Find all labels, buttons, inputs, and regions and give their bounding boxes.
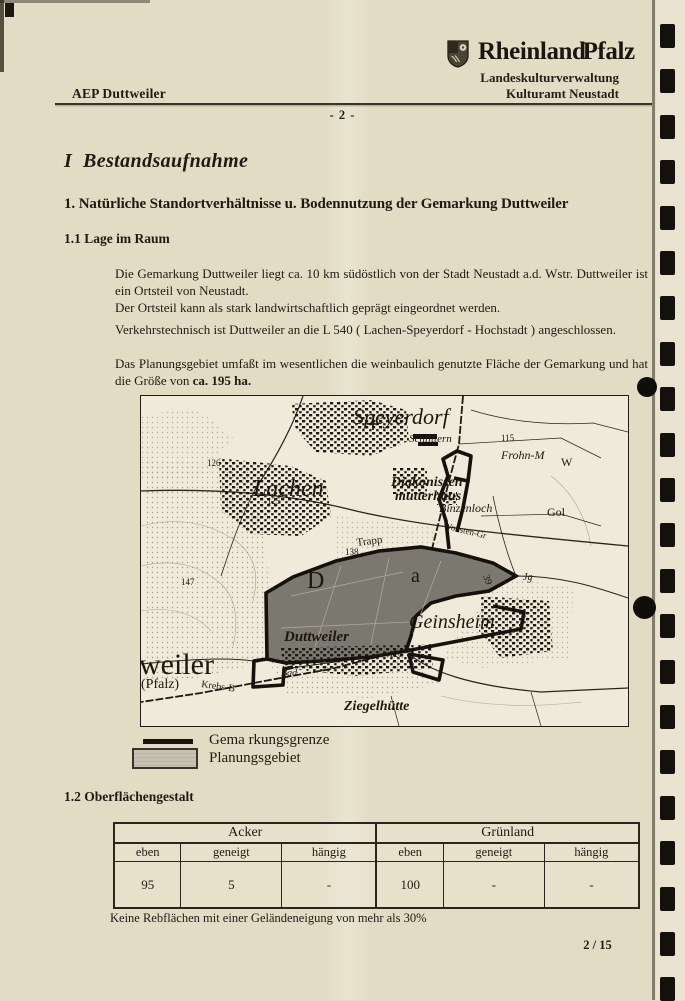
- org-line-1: Landeskulturverwaltung: [480, 70, 619, 86]
- binding-hole: [660, 206, 675, 230]
- coat-of-arms-icon: [447, 40, 469, 73]
- binding-hole: [660, 387, 675, 411]
- punch-hole-dot-lower: [633, 596, 656, 619]
- binding-hole: [660, 569, 675, 593]
- binding-hole: [660, 614, 675, 638]
- legend-planning-label: Planungsgebiet: [209, 750, 301, 767]
- section-heading-1: I Bestandsaufnahme: [64, 150, 248, 173]
- table-value-acker-haengig: -: [282, 862, 377, 909]
- map-label-115: 115: [501, 433, 515, 443]
- page-number: 2 / 15: [560, 938, 635, 953]
- brand-part-2: Pfalz: [583, 38, 635, 65]
- top-left-scan-edge: [0, 0, 4, 72]
- map-label-diakonissen: Diakonissen: [390, 475, 463, 490]
- binding-hole: [660, 660, 675, 684]
- section-heading-3: 1.1 Lage im Raum: [64, 231, 170, 247]
- map-label-bad: Bad: [281, 668, 298, 679]
- binding-hole: [660, 932, 675, 956]
- map-label-120: 120: [389, 649, 403, 659]
- organization-block: Landeskulturverwaltung Kulturamt Neustad…: [480, 70, 619, 101]
- table-header-row: eben geneigt hängig eben geneigt hängig: [114, 843, 639, 862]
- section-heading-2: 1. Natürliche Standortverhältnisse u. Bo…: [64, 196, 568, 213]
- binding-hole: [660, 796, 675, 820]
- paragraph-location: Die Gemarkung Duttweiler liegt ca. 10 km…: [115, 266, 648, 316]
- binding-hole: [660, 705, 675, 729]
- top-scan-shadow: [0, 0, 150, 3]
- binding-hole: [660, 296, 675, 320]
- table-value-gruenland-geneigt: -: [443, 862, 544, 909]
- brand-part-1: Rheinland: [478, 38, 586, 65]
- map-label-147: 147: [181, 577, 195, 587]
- map-label-d: D: [307, 568, 324, 594]
- brand-logo-text: RheinlandPfalz: [478, 38, 635, 66]
- map-label-jg: Jg: [523, 572, 532, 583]
- map-label-125: 125: [267, 496, 281, 506]
- table-col-acker-haengig: hängig: [282, 843, 377, 862]
- legend-planning-swatch: [132, 748, 198, 769]
- map-label-ziegelhuette: Ziegelhütte: [343, 699, 409, 714]
- map-label-pfalz: (Pfalz): [141, 677, 179, 692]
- table-col-acker-eben: eben: [114, 843, 181, 862]
- map-graphic: Speyerdorf Lachen 126 125 Schlittern 115…: [141, 396, 628, 726]
- table-value-acker-eben: 95: [114, 862, 181, 909]
- section-heading-surface: 1.2 Oberflächengestalt: [64, 789, 194, 805]
- header-rule: [55, 103, 652, 105]
- legend-boundary-label: Gema rkungsgrenze: [209, 732, 329, 749]
- legend-boundary-swatch: [143, 739, 193, 744]
- top-left-scan-mark: [5, 3, 14, 17]
- map-label-138: 138: [345, 547, 359, 557]
- binding-hole: [660, 251, 675, 275]
- table-col-gruenland-haengig: hängig: [544, 843, 639, 862]
- binding-hole: [660, 977, 675, 1001]
- document-reference: AEP Duttweiler: [72, 86, 166, 102]
- binding-strip-background: [656, 0, 685, 1000]
- table-value-gruenland-haengig: -: [544, 862, 639, 909]
- paragraph-planning-area: Das Planungsgebiet umfaßt im wesentliche…: [115, 356, 648, 390]
- binding-hole: [660, 160, 675, 184]
- table-value-acker-geneigt: 5: [181, 862, 282, 909]
- binding-hole: [660, 24, 675, 48]
- map-label-frohn-m: Frohn-M: [500, 448, 546, 462]
- binding-hole: [660, 887, 675, 911]
- paragraph-traffic: Verkehrstechnisch ist Duttweiler an die …: [115, 322, 648, 339]
- table-col-acker-geneigt: geneigt: [181, 843, 282, 862]
- table-col-gruenland-geneigt: geneigt: [443, 843, 544, 862]
- binding-hole: [660, 750, 675, 774]
- map-label-lachen: Lachen: [252, 476, 324, 502]
- table-value-gruenland-eben: 100: [376, 862, 443, 909]
- footnote: Keine Rebflächen mit einer Geländeneigun…: [110, 911, 427, 926]
- map-label-126: 126: [207, 458, 221, 468]
- map-label-gol: Gol: [547, 505, 566, 519]
- paragraph-location-text: Die Gemarkung Duttweiler liegt ca. 10 km…: [115, 266, 648, 298]
- binding-hole: [660, 523, 675, 547]
- scanned-document-page: { "header": { "doc_ref": "AEP Duttweiler…: [0, 0, 685, 1000]
- binding-hole: [660, 433, 675, 457]
- table-group-gruenland: Grünland: [376, 823, 639, 843]
- binding-hole: [660, 69, 675, 93]
- table-col-gruenland-eben: eben: [376, 843, 443, 862]
- paragraph-character-text: Der Ortsteil kann als stark landwirtscha…: [115, 300, 500, 315]
- map-label-w: W: [561, 455, 573, 469]
- paragraph-planning-size: ca. 195 ha.: [193, 373, 252, 388]
- table-group-acker: Acker: [114, 823, 376, 843]
- org-line-2: Kulturamt Neustadt: [480, 86, 619, 102]
- binding-hole: [660, 478, 675, 502]
- topographic-map: Speyerdorf Lachen 126 125 Schlittern 115…: [140, 395, 629, 727]
- map-label-schlittern: Schlittern: [409, 433, 452, 445]
- map-label-geinsheim: Geinsheim: [409, 611, 495, 633]
- map-label-duttweiler: Duttweiler: [283, 629, 349, 645]
- binding-hole: [660, 841, 675, 865]
- page-edge-line: [652, 0, 655, 1000]
- map-label-binzenloch: Binzenloch: [439, 501, 492, 515]
- map-label-a: a: [411, 565, 420, 587]
- table-group-row: Acker Grünland: [114, 823, 639, 843]
- surface-table: Acker Grünland eben geneigt hängig eben …: [113, 822, 640, 909]
- binding-hole: [660, 342, 675, 366]
- page-marker: - 2 -: [0, 108, 685, 123]
- table-value-row: 95 5 - 100 - -: [114, 862, 639, 909]
- map-label-speyerdorf: Speyerdorf: [353, 404, 452, 429]
